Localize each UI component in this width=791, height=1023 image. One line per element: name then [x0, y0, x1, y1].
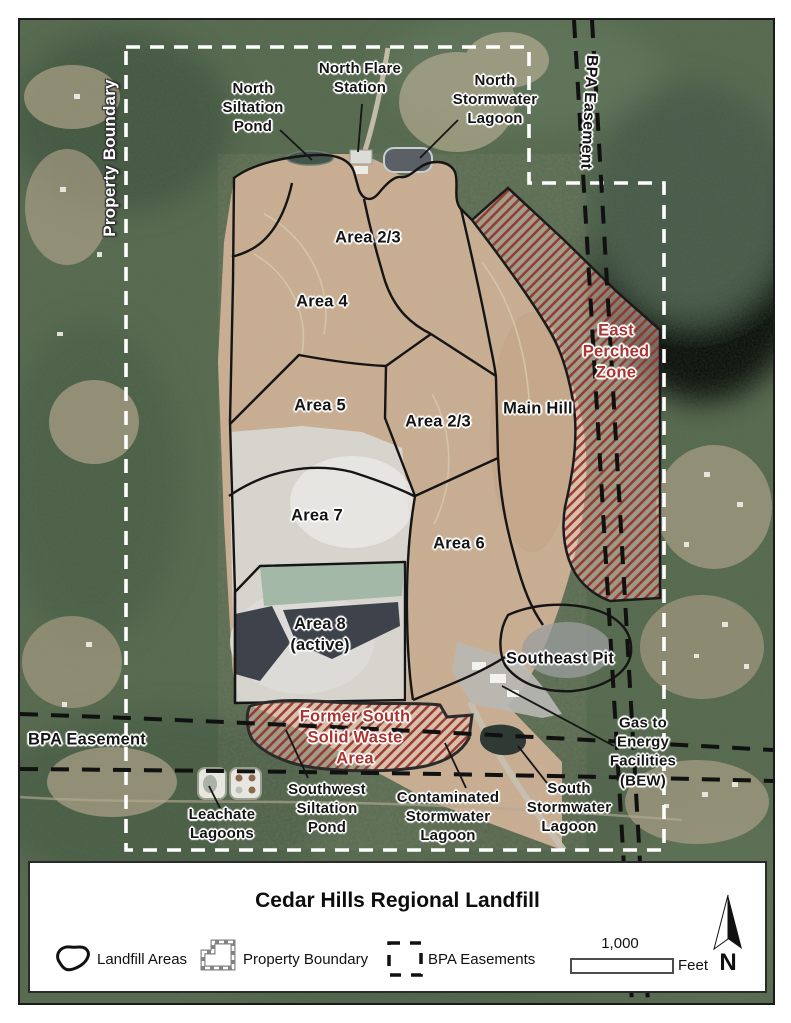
property-boundary-legend-label: Property Boundary: [243, 951, 368, 968]
map-title: Cedar Hills Regional Landfill: [30, 889, 765, 913]
landfill-areas-icon: [50, 941, 94, 977]
legend-box: Cedar Hills Regional Landfill Landfill A…: [28, 861, 767, 993]
north-stormwater-lagoon-water: [384, 148, 432, 172]
landfill-areas-legend-label: Landfill Areas: [97, 951, 187, 968]
north-label: N: [698, 949, 758, 977]
bpa-easements-icon: [385, 939, 425, 979]
aerial-map: [18, 18, 775, 1005]
property-boundary-icon: [196, 937, 240, 975]
scale-bar: [570, 958, 674, 974]
landfill-map-page: Property Boundary BPA Easement North Sil…: [0, 0, 791, 1023]
scale-value: 1,000: [568, 935, 672, 952]
bpa-easements-legend-label: BPA Easements: [428, 951, 535, 968]
former-south-solid-waste-hatch: [247, 701, 472, 771]
aerial-basemap-graphics: [20, 20, 773, 1003]
north-arrow-icon: [708, 893, 748, 953]
